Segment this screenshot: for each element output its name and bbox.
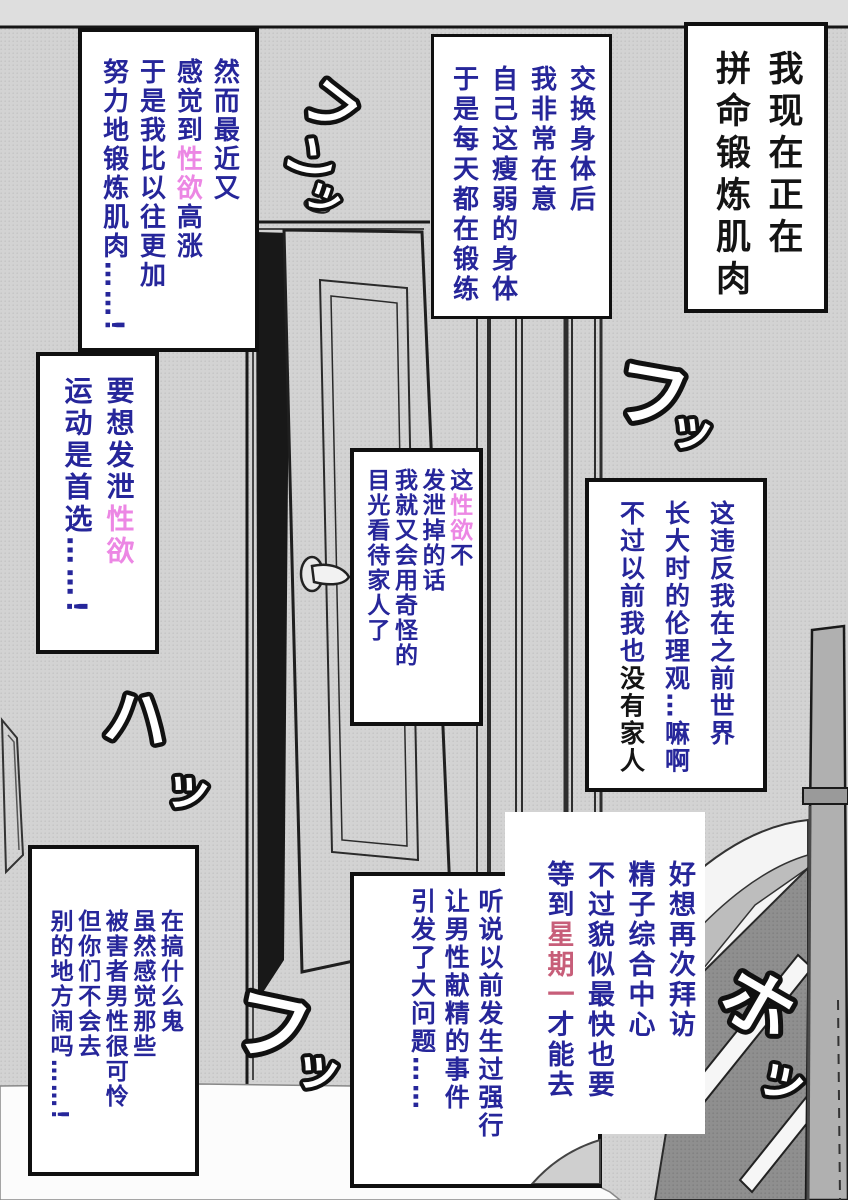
text-column: 等到星期一才能去 (537, 860, 578, 1134)
text-segment: 这违反我在之前世界 (707, 500, 736, 748)
vertical-text: 要想发泄性欲 运动是首选……! (56, 356, 140, 650)
text-column: 但你们不会去 (72, 909, 100, 1172)
corner-wedge (530, 1138, 602, 1184)
text-column: 好想再次拜访 (659, 860, 700, 1134)
text-column: 目光看待家人了 (361, 468, 389, 722)
speech-box-title: 我现在正在 拼命锻炼肌肉 (684, 22, 828, 313)
text-segment: 虽然感觉那些 (129, 909, 155, 1059)
text-column: 被害者男性很可怜 (100, 909, 128, 1172)
text-segment: 星期一 (543, 920, 574, 1010)
speech-box-visit: 好想再次拜访 精子综合中心 不过貌似最快也要 等到星期一才能去 (505, 812, 705, 1134)
text-column: 精子综合中心 (618, 860, 659, 1134)
text-column: 不过貌似最快也要 (578, 860, 619, 1134)
text-column: 要想发泄性欲 (98, 376, 140, 650)
text-column: 引发了大问题…… (405, 888, 439, 1184)
text-segment: 然而最近又 (209, 58, 239, 203)
vertical-text: 这违反我在之前世界 长大时的伦理观…嘛啊 不过以前我也没有家人 (609, 482, 744, 788)
text-segment: 高涨 (172, 203, 202, 261)
text-segment: 发泄掉的话 (418, 468, 444, 593)
vertical-text: 交换身体后 我非常在意 自己这瘦弱的身体 于是每天都在锻练 (444, 37, 600, 316)
text-segment: 没有家人 (617, 665, 646, 775)
text-segment: 我非常在意 (527, 65, 557, 215)
text-segment: 让男性献精的事件 (441, 888, 470, 1112)
text-segment: 才能去 (543, 1010, 574, 1100)
text-column: 发泄掉的话 (417, 468, 445, 722)
speech-box-vent: 要想发泄性欲 运动是首选……! (36, 352, 159, 654)
text-segment: 不过貌似最快也要 (583, 860, 614, 1100)
text-column: 这违反我在之前世界 (699, 500, 744, 788)
speech-box-complain: 在搞什么鬼 虽然感觉那些 被害者男性很可怜 但你们不会去 别的地方闹吗……! (28, 845, 199, 1176)
speech-box-ethics: 这违反我在之前世界 长大时的伦理观…嘛啊 不过以前我也没有家人 (585, 478, 767, 792)
text-column: 运动是首选……! (56, 376, 98, 650)
text-segment: 于是我比以往更加 (136, 58, 166, 290)
text-column: 别的地方闹吗……! (45, 909, 73, 1172)
text-segment: 拼命锻炼肌肉 (710, 50, 750, 302)
text-segment: 要想发泄 (103, 376, 136, 504)
text-segment: 感觉到 (172, 58, 202, 145)
text-column: 拼命锻炼肌肉 (704, 50, 757, 309)
text-column: 我就又会用奇怪的 (389, 468, 417, 722)
text-segment: 我现在正在 (763, 50, 803, 260)
text-segment: 目光看待家人了 (363, 468, 389, 643)
vertical-text: 听说以前发生过强行 让男性献精的事件 引发了大问题…… (405, 876, 506, 1184)
text-column: 在搞什么鬼 (155, 909, 183, 1172)
manga-panel: 我现在正在 拼命锻炼肌肉 交换身体后 我非常在意 自己这瘦弱的身体 于是每天都在… (0, 0, 848, 1200)
text-segment: 性欲 (172, 145, 202, 203)
speech-box-gaze: 这性欲不 发泄掉的话 我就又会用奇怪的 目光看待家人了 (350, 448, 483, 726)
text-column: 感觉到性欲高涨 (169, 58, 206, 348)
text-column: 交换身体后 (561, 65, 600, 316)
text-column: 我非常在意 (522, 65, 561, 316)
text-column: 让男性献精的事件 (439, 888, 473, 1184)
text-column: 虽然感觉那些 (127, 909, 155, 1172)
text-column: 听说以前发生过强行 (472, 888, 506, 1184)
speech-box-train: 交换身体后 我非常在意 自己这瘦弱的身体 于是每天都在锻练 (431, 34, 612, 319)
text-column: 不过以前我也没有家人 (609, 500, 654, 788)
text-segment: 交换身体后 (566, 65, 596, 215)
text-segment: 别的地方闹吗……! (46, 909, 72, 1122)
text-column: 然而最近又 (205, 58, 242, 348)
text-segment: 长大时的伦理观…嘛啊 (662, 500, 691, 775)
text-segment: 精子综合中心 (624, 860, 655, 1040)
text-column: 自己这瘦弱的身体 (483, 65, 522, 316)
speech-box-however: 然而最近又 感觉到性欲高涨 于是我比以往更加 努力地锻炼肌肉……! (78, 28, 259, 352)
text-column: 我现在正在 (756, 50, 809, 309)
vertical-text: 好想再次拜访 精子综合中心 不过貌似最快也要 等到星期一才能去 (537, 812, 699, 1134)
text-segment: 被害者男性很可怜 (101, 909, 127, 1109)
text-segment: 好想再次拜访 (664, 860, 695, 1040)
vertical-text: 然而最近又 感觉到性欲高涨 于是我比以往更加 努力地锻炼肌肉……! (95, 32, 243, 348)
text-segment: 性欲 (446, 493, 472, 543)
text-column: 努力地锻炼肌肉……! (95, 58, 132, 348)
text-segment: 不 (446, 543, 472, 568)
text-segment: 引发了大问题…… (408, 888, 437, 1112)
text-segment: 在搞什么鬼 (156, 909, 182, 1034)
text-segment: 等到 (543, 860, 574, 920)
text-column: 长大时的伦理观…嘛啊 (654, 500, 699, 788)
text-segment: 这 (446, 468, 472, 493)
text-segment: 努力地锻炼肌肉……! (99, 58, 129, 334)
text-column: 于是每天都在锻练 (444, 65, 483, 316)
text-segment: 听说以前发生过强行 (475, 888, 504, 1140)
text-segment: 运动是首选……! (61, 376, 94, 617)
vertical-text: 这性欲不 发泄掉的话 我就又会用奇怪的 目光看待家人了 (361, 452, 471, 722)
text-column: 这性欲不 (444, 468, 472, 722)
text-segment: 我就又会用奇怪的 (391, 468, 417, 668)
vertical-text: 在搞什么鬼 虽然感觉那些 被害者男性很可怜 但你们不会去 别的地方闹吗……! (45, 849, 183, 1172)
text-segment: 自己这瘦弱的身体 (488, 65, 518, 305)
text-segment: 性欲 (103, 504, 136, 568)
text-segment: 于是每天都在锻练 (449, 65, 479, 305)
vertical-text: 我现在正在 拼命锻炼肌肉 (704, 26, 809, 309)
text-segment: 不过以前我也 (617, 500, 646, 665)
text-segment: 但你们不会去 (74, 909, 100, 1059)
text-column: 于是我比以往更加 (132, 58, 169, 348)
